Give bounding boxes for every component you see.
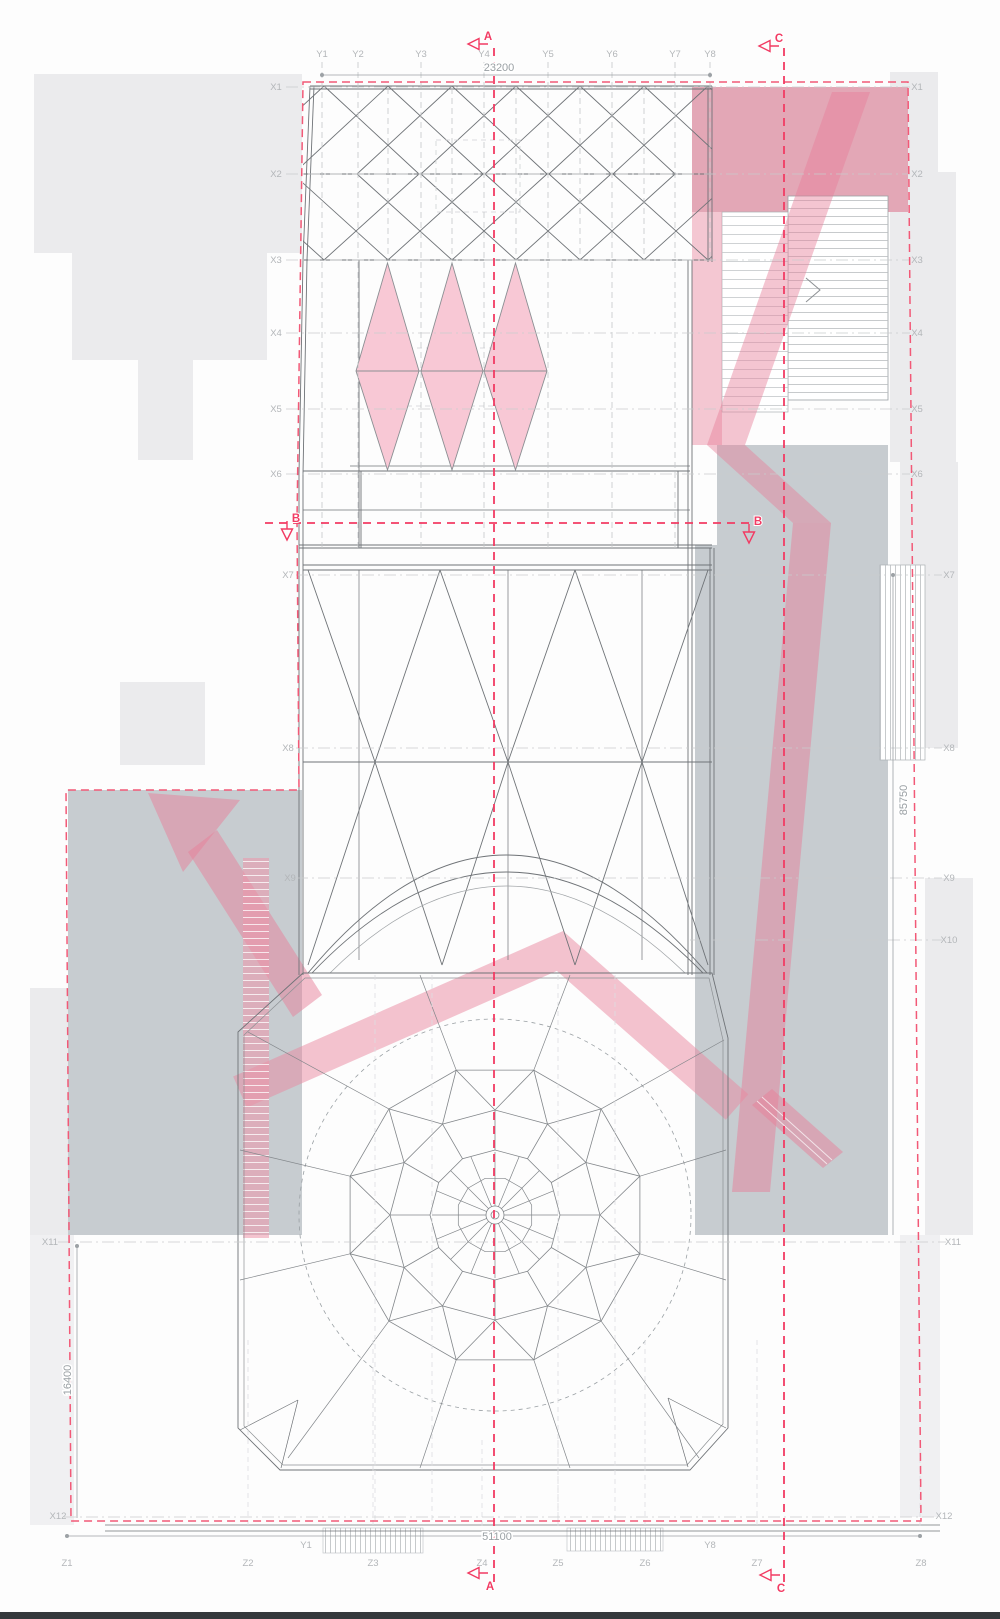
grid-axis-label-X9: X9 (943, 873, 955, 884)
grid-axis-label-X4: X4 (270, 328, 282, 339)
grid-axis-label-X8: X8 (943, 743, 955, 754)
site-block (30, 988, 74, 1235)
dome-spokes (432, 1152, 558, 1278)
grid-axis-label-X7: X7 (282, 570, 294, 581)
pink-diamond (421, 263, 483, 470)
grid-axis-label-X3: X3 (911, 255, 923, 266)
site-block (120, 682, 205, 765)
section-letter: A (486, 1581, 494, 1593)
grid-axis-label-X4: X4 (911, 328, 923, 339)
site-block (925, 878, 973, 1235)
footer-bar (0, 1612, 1000, 1619)
site-block (72, 253, 267, 360)
grid-axis-label-X9: X9 (284, 873, 296, 884)
section-letter: B (292, 513, 300, 525)
grid-axis-label-X12: X12 (50, 1511, 67, 1522)
grid-axis-label-Y1: Y1 (316, 49, 328, 60)
pink-diamond (484, 263, 547, 470)
grid-axis-label-X7: X7 (943, 570, 955, 581)
grid-axis-label-X5: X5 (911, 404, 923, 415)
grid-axis-label-Y8: Y8 (704, 49, 716, 60)
dimension-text: 16400 (62, 1365, 74, 1396)
grid-axis-label-X12: X12 (936, 1511, 953, 1522)
site-block (890, 172, 956, 462)
grid-axis-label-Y3: Y3 (415, 49, 427, 60)
grid-axis-label-Y4: Y4 (478, 49, 490, 60)
grid-axis-label-X3: X3 (270, 255, 282, 266)
grid-axis-label-X1: X1 (911, 82, 923, 93)
grid-axis-label-Z6: Z6 (639, 1558, 650, 1569)
grid-axis-label-Z3: Z3 (367, 1558, 378, 1569)
dimension-text: 23200 (484, 62, 515, 74)
grid-axis-label-Z8: Z8 (915, 1558, 926, 1569)
section-letter: C (777, 1583, 785, 1595)
site-block (34, 74, 302, 253)
grid-axis-label-X10: X10 (941, 935, 958, 946)
grid-axis-label-X2: X2 (270, 169, 282, 180)
grid-axis-label-Y2: Y2 (352, 49, 364, 60)
section-arrow-icon (760, 1570, 780, 1581)
grid-axis-label-Z1: Z1 (61, 1558, 72, 1569)
zigzag-ramp (240, 951, 737, 1107)
left-stair-strip (243, 858, 269, 1238)
section-arrow-icon (468, 1568, 488, 1579)
right-edge-stair (880, 565, 925, 760)
roof-plan-canvas: Y1Y2Y3Y4Y5Y6Y7Y8X1X2X3X4X5X6X7X8X9X11X12… (0, 0, 1000, 1619)
grid-axis-label-X6: X6 (911, 469, 923, 480)
arch-outer (308, 855, 707, 973)
grid-axis-label-Z2: Z2 (242, 1558, 253, 1569)
grid-axis-label-Y7: Y7 (669, 49, 681, 60)
roof-plan-drawing: Y1Y2Y3Y4Y5Y6Y7Y8X1X2X3X4X5X6X7X8X9X11X12… (0, 0, 1000, 1619)
grid-axis-label-Y8: Y8 (704, 1540, 716, 1551)
section-letter: B (754, 516, 762, 528)
big-diamond-lattice (308, 570, 708, 965)
section-marker-A: A (468, 1568, 494, 1594)
dome-dashed-circle (299, 1019, 691, 1411)
dimension-text: 85750 (898, 785, 910, 816)
grid-axis-label-Y5: Y5 (542, 49, 554, 60)
grid-axis-label-Z7: Z7 (751, 1558, 762, 1569)
grid-axis-label-X8: X8 (282, 743, 294, 754)
grid-axis-label-X5: X5 (270, 404, 282, 415)
grid-axis-label-Z5: Z5 (552, 1558, 563, 1569)
section-marker-C: C (759, 33, 783, 52)
grid-axis-label-X2: X2 (911, 169, 923, 180)
grid-axis-label-Y1: Y1 (300, 1540, 312, 1551)
section-letter: A (484, 31, 492, 43)
section-letter: C (775, 33, 783, 45)
grid-axis-label-X6: X6 (270, 469, 282, 480)
site-block (138, 360, 193, 460)
dimension-text: 51100 (482, 1531, 512, 1543)
section-marker-C: C (760, 1570, 785, 1596)
grid-axis-label-Y6: Y6 (606, 49, 618, 60)
grid-axis-label-X1: X1 (270, 82, 282, 93)
pink-diamond (356, 263, 419, 470)
pink-diamonds (356, 263, 547, 470)
section-marker-A: A (468, 31, 492, 50)
grid-axis-label-X11: X11 (945, 1237, 961, 1248)
pink-slab (692, 212, 722, 445)
grid-axis-label-X11: X11 (42, 1237, 58, 1248)
